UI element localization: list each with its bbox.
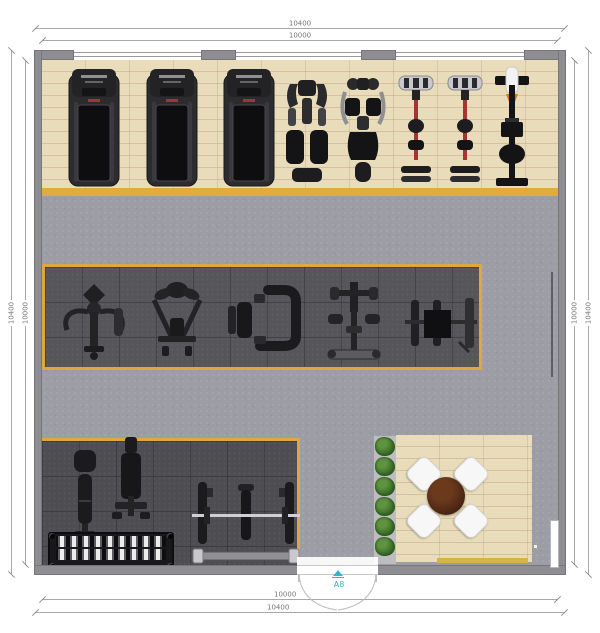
leg-press-machine-icon <box>224 280 304 360</box>
side-window <box>550 520 559 568</box>
door-handle-dot <box>534 545 537 548</box>
plant-icon <box>375 437 395 456</box>
dimension-label: 10000 <box>23 299 30 325</box>
bench-station-icon <box>403 294 479 354</box>
adjustable-bench-icon <box>110 436 152 536</box>
window-icon <box>73 50 202 60</box>
treadmill-icon <box>146 68 198 190</box>
dimension-label: 10000 <box>287 33 313 40</box>
cross-trainer-icon <box>282 78 332 188</box>
wall-mirror <box>551 272 553 377</box>
dimension-line-left-inner: 10000 <box>25 60 26 565</box>
dimension-label: 10400 <box>265 605 291 612</box>
dimension-line-top-inner: 10000 <box>42 40 558 41</box>
window-icon <box>395 50 525 60</box>
door-label: A8 <box>326 580 352 589</box>
dimension-line-right-outer: 10400 <box>588 50 589 575</box>
gym-floor-plan: 10400 10000 10000 10400 10400 10000 1000… <box>0 0 600 633</box>
dimension-label: 10000 <box>572 299 579 325</box>
treadmill-icon <box>223 68 275 190</box>
bench-press-rack-icon <box>192 476 300 566</box>
dumbbell-row <box>56 549 166 560</box>
dimension-label: 10400 <box>287 21 313 28</box>
dimension-label: 10400 <box>9 299 16 325</box>
round-table-icon <box>427 477 465 515</box>
door-marker-icon <box>333 570 343 576</box>
plant-icon <box>375 477 395 496</box>
lat-pulldown-machine-icon <box>140 278 214 364</box>
wall-right <box>558 50 566 575</box>
plant-icon <box>375 537 395 556</box>
dumbbell-row <box>56 536 166 547</box>
dimension-label: 10000 <box>272 592 298 599</box>
lounge-floor-edge <box>437 558 528 563</box>
recumbent-bike-icon <box>337 76 389 190</box>
door-threshold <box>297 557 378 565</box>
dimension-line-right-inner: 10000 <box>574 60 575 565</box>
plant-row <box>374 436 396 564</box>
dimension-label: 10400 <box>586 299 593 325</box>
plant-icon <box>375 457 395 476</box>
dimension-line-top-outer: 10400 <box>35 28 565 29</box>
flat-bench-icon <box>70 448 100 540</box>
dimension-line-left-outer: 10400 <box>11 50 12 575</box>
wall-left <box>34 50 42 575</box>
plant-icon <box>375 517 395 536</box>
spin-bike-icon <box>447 74 483 186</box>
treadmill-icon <box>68 68 120 190</box>
pec-deck-machine-icon <box>58 282 130 362</box>
spin-bike-icon <box>398 74 434 186</box>
multi-press-station-icon <box>324 278 384 366</box>
rowing-machine-icon <box>493 66 531 190</box>
plant-icon <box>375 497 395 516</box>
door-marker-line <box>332 577 344 578</box>
window-icon <box>235 50 362 60</box>
